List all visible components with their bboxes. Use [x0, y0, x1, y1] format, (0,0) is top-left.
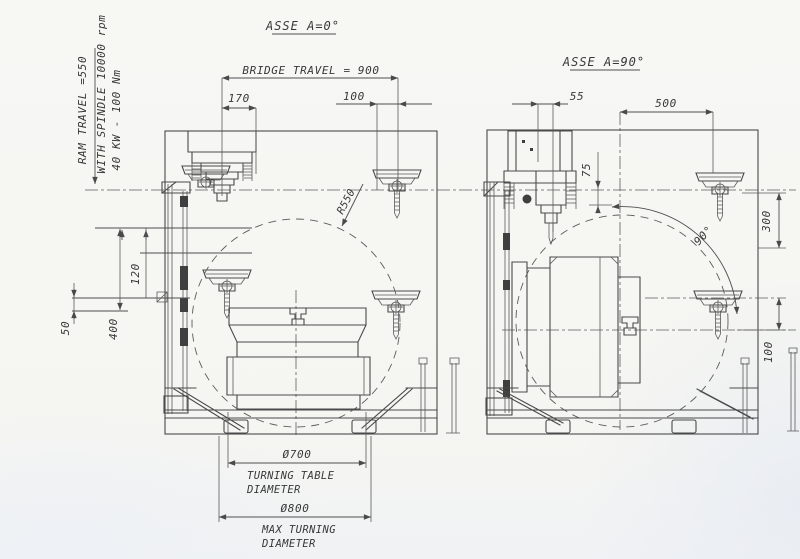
- guard-post: [419, 358, 427, 432]
- max-caption-line2: DIAMETER: [261, 538, 316, 550]
- right-clamp-top: [696, 173, 744, 196]
- right-clamps: [694, 173, 744, 339]
- spindle-pulley: [523, 195, 532, 204]
- left-rotary-table: [227, 308, 370, 409]
- clamp-screw-bottom-right: [394, 312, 399, 339]
- right-workpiece: [512, 257, 640, 397]
- right-clamp-bottom: [694, 291, 742, 314]
- table-body: [227, 308, 370, 409]
- clamp-screw-top-right: [395, 191, 400, 218]
- ram-travel-note: RAM TRAVEL =550: [76, 56, 89, 164]
- dim-400-label: 400: [107, 318, 120, 340]
- housing-dots: [522, 140, 533, 151]
- right-spindle-housing: [504, 131, 576, 223]
- dim-700-label: Ø700: [283, 448, 312, 461]
- dim-300-label: 300: [760, 210, 773, 233]
- clamp-top-right: [373, 170, 421, 193]
- right-clamp-screw-bottom: [716, 312, 721, 339]
- spindle-note: WITH SPINDLE 10000 rpm: [95, 15, 108, 174]
- scanned-drawing-sheet: RAM TRAVEL =550 WITH SPINDLE 10000 rpm 4…: [0, 0, 800, 559]
- mid-guard-post: [446, 358, 460, 433]
- right-top-dimensions: 55 500 75: [512, 90, 713, 232]
- power-note: 40 KW - 100 Nm: [110, 69, 123, 170]
- head-bracket: [484, 182, 510, 196]
- outer-guard-post: [787, 348, 799, 431]
- max-caption-line1: MAX TURNING: [261, 524, 336, 536]
- left-clamps: [182, 166, 421, 339]
- right-view: ASSE A=90°: [484, 55, 799, 434]
- clamp-mid-left: [203, 270, 251, 293]
- dim-55-label: 55: [570, 90, 584, 103]
- dim-120-label: 120: [129, 263, 142, 285]
- table-inner-lines: [233, 357, 364, 395]
- workpiece-body: [512, 257, 640, 397]
- dim-100-label: 100: [343, 90, 365, 103]
- table-caption-line2: DIAMETER: [246, 484, 301, 496]
- right-column: [486, 182, 512, 416]
- dim-100r-label: 100: [762, 341, 775, 363]
- right-clamp-screw-top: [718, 194, 723, 221]
- dim-170-label: 170: [228, 92, 250, 105]
- right-view-title: ASSE A=90°: [562, 55, 645, 69]
- dim-500-label: 500: [655, 97, 677, 110]
- dim-50-label: 50: [59, 321, 72, 335]
- left-view-title: ASSE A=0°: [265, 19, 340, 33]
- right-base-foot-right: [672, 420, 696, 433]
- workpiece-tslot: [622, 317, 638, 335]
- right-base-foot-left: [546, 420, 570, 433]
- right-spindle-head: [484, 131, 576, 244]
- right-base: [487, 348, 799, 433]
- left-top-dimensions: BRIDGE TRAVEL = 900 170 100: [222, 64, 432, 196]
- table-tslot: [290, 308, 306, 325]
- margin-notes: RAM TRAVEL =550 WITH SPINDLE 10000 rpm 4…: [76, 15, 123, 184]
- dim-800-label: Ø800: [281, 502, 310, 515]
- dim-75-ext: [589, 152, 612, 210]
- right-side-dimensions: 300 100: [737, 193, 786, 363]
- right-machine-frame: [487, 130, 758, 434]
- right-base-linework: [487, 388, 758, 425]
- column-bracket: [162, 182, 190, 193]
- technical-drawing: RAM TRAVEL =550 WITH SPINDLE 10000 rpm 4…: [0, 0, 800, 559]
- table-caption-line1: TURNING TABLE: [247, 470, 335, 482]
- dim-75-label: 75: [580, 163, 593, 177]
- bridge-travel-label: BRIDGE TRAVEL = 900: [242, 64, 379, 77]
- workpiece-chamfers: [550, 257, 618, 397]
- right-guard-post: [741, 358, 749, 433]
